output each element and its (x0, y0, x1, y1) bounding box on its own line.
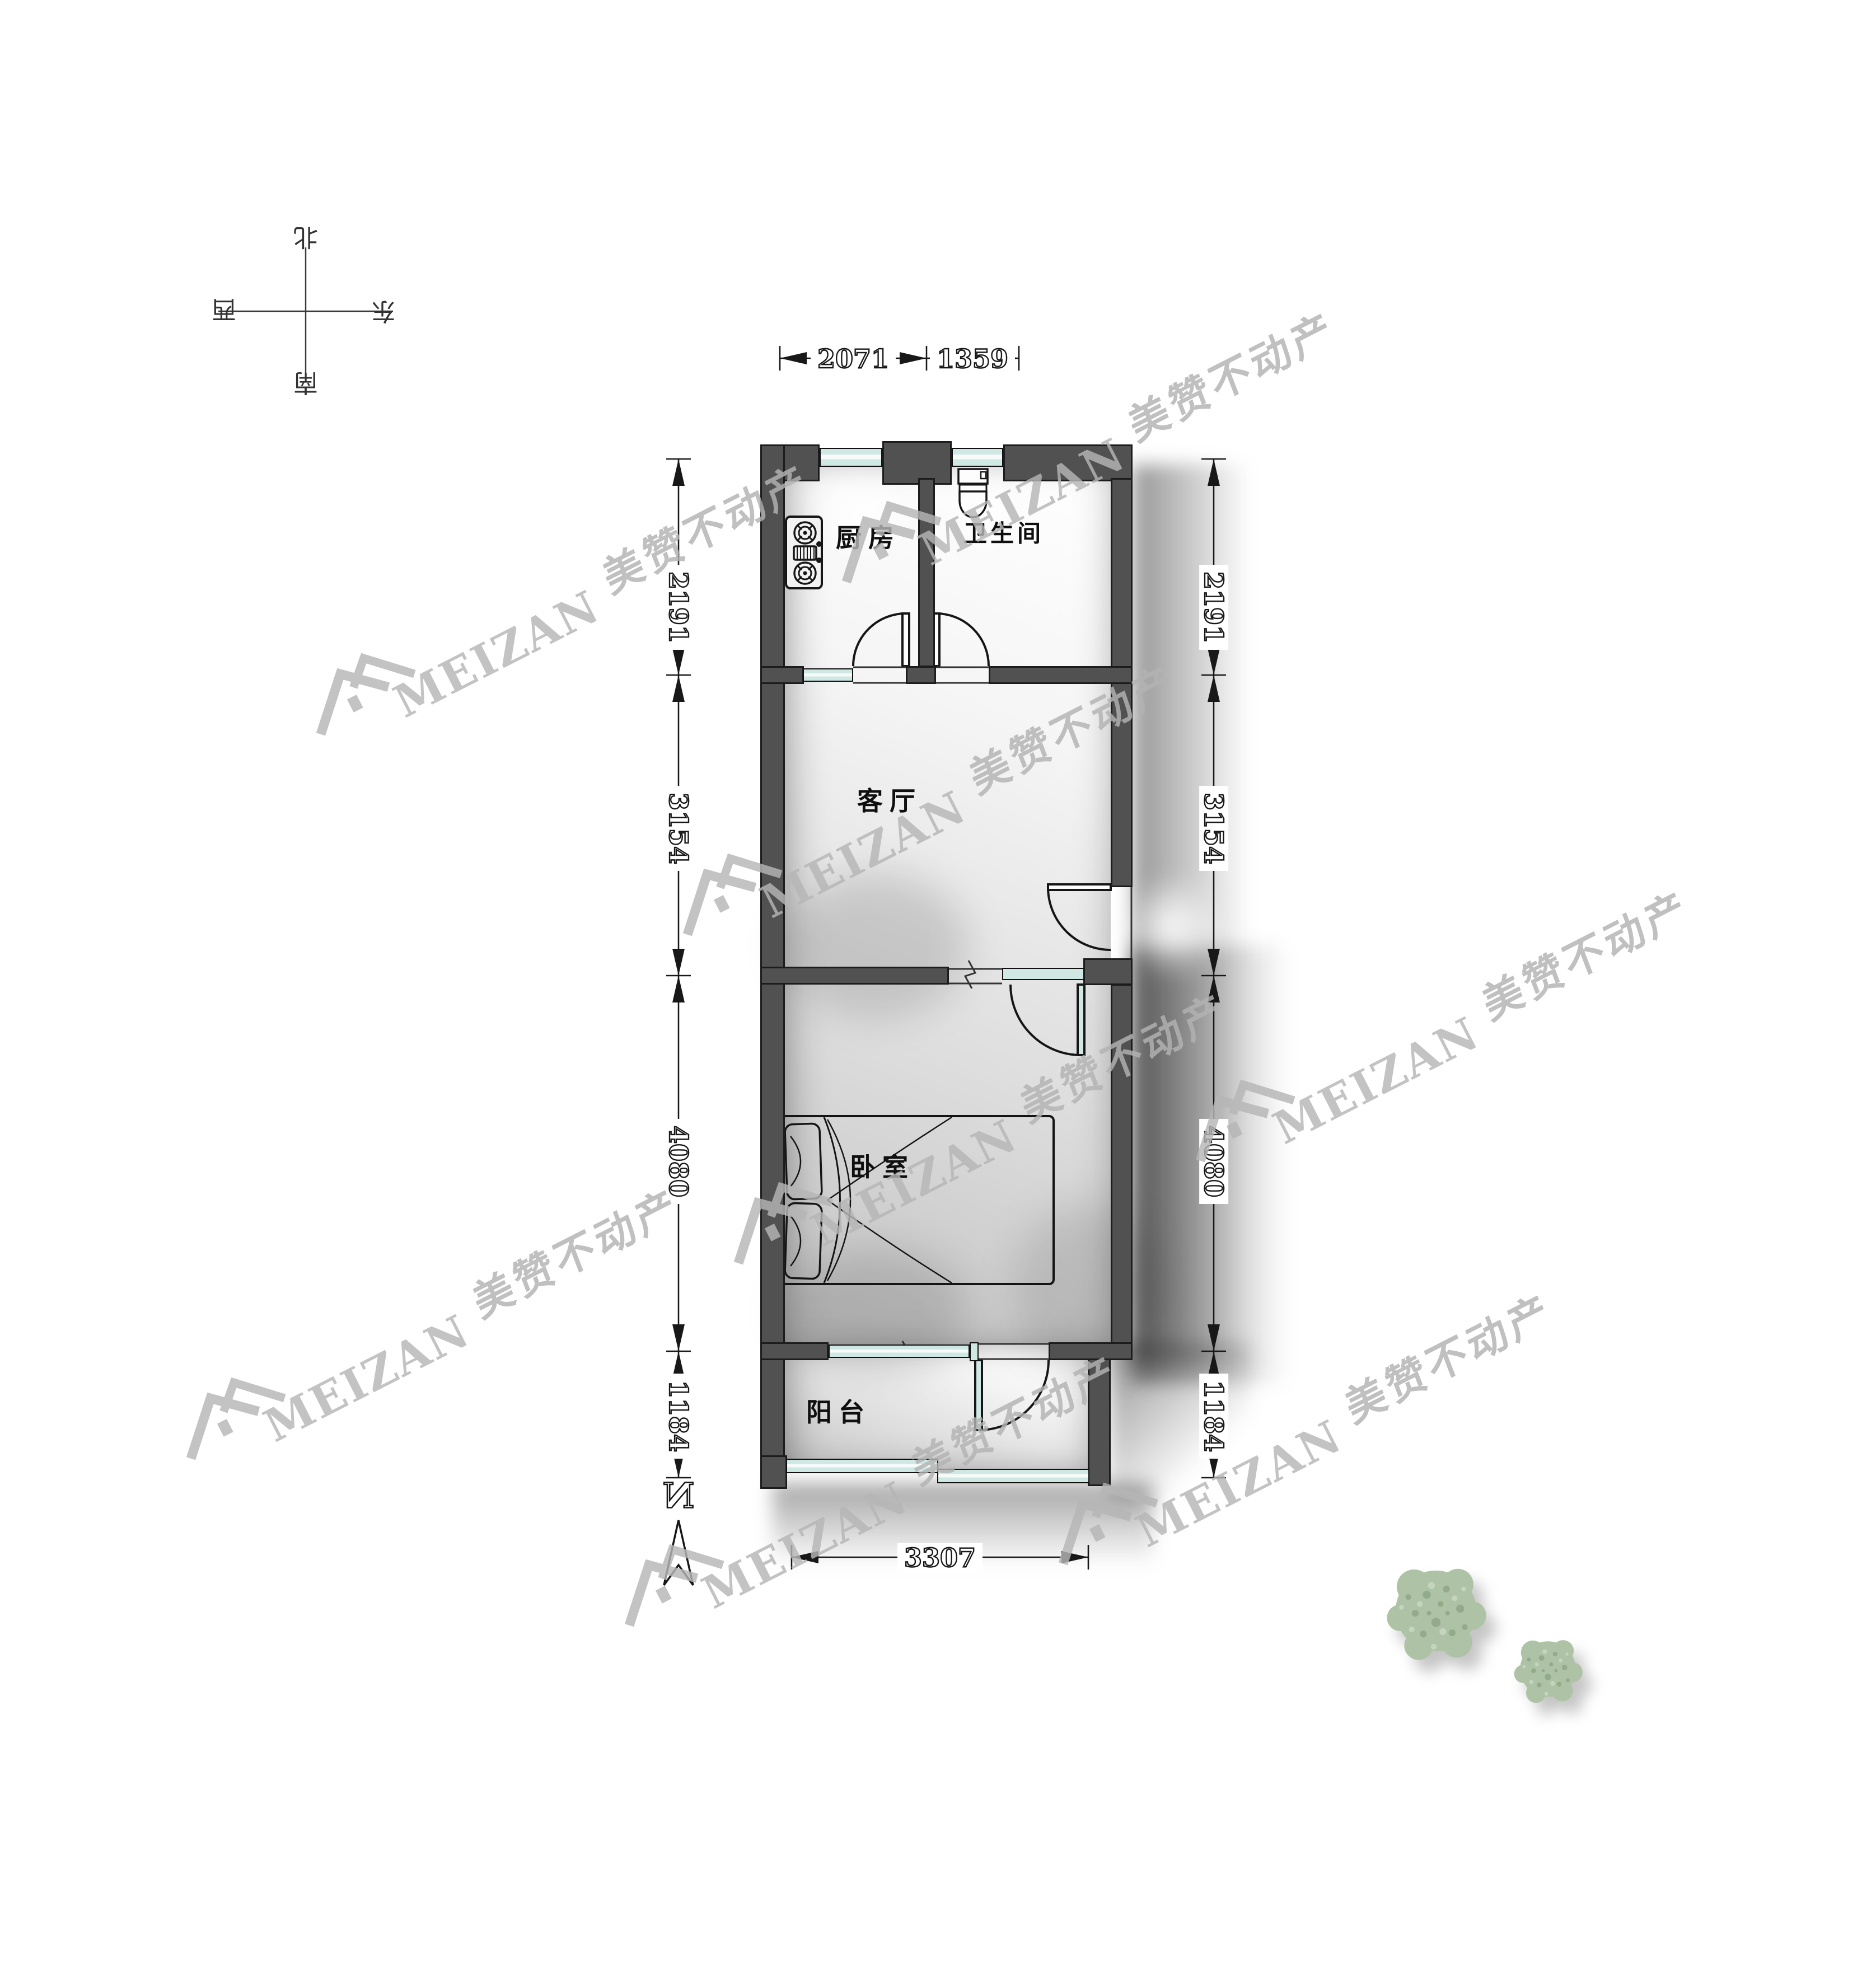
compass-north: 北 (293, 222, 318, 257)
dim-right-3: 4080 (1199, 1119, 1228, 1204)
dim-left-4: 1184 (664, 1374, 693, 1459)
room-label-kitchen: 厨房 (829, 518, 901, 555)
dim-left-3: 4080 (664, 1119, 693, 1204)
floor-plan-page: 2071 1359 2191 3154 4080 1184 2191 3154 … (0, 0, 1876, 1963)
compass-west: 西 (212, 294, 236, 330)
room-label-bathroom: 卫生间 (960, 515, 1044, 549)
dim-bottom-1: 3307 (897, 1543, 983, 1572)
dimension-lines (0, 0, 1876, 1963)
room-label-balcony: 阳台 (799, 1392, 871, 1429)
dimension-arrows (672, 352, 1220, 1563)
dim-left-1: 2191 (664, 565, 693, 650)
dim-left-2: 3154 (664, 786, 693, 871)
tree-icon (1508, 1628, 1588, 1711)
dim-right-1: 2191 (1199, 565, 1228, 650)
dim-right-2: 3154 (1199, 786, 1228, 871)
dim-top-1: 2071 (811, 344, 896, 373)
room-label-living: 客厅 (850, 781, 922, 818)
compass-south: 南 (293, 367, 318, 403)
tree-icon (1378, 1550, 1494, 1671)
north-label: N (663, 1475, 695, 1516)
compass-east: 东 (371, 296, 396, 331)
room-label-bedroom: 卧室 (843, 1147, 915, 1184)
dim-right-4: 1184 (1199, 1374, 1228, 1459)
dim-top-2: 1359 (930, 344, 1015, 373)
